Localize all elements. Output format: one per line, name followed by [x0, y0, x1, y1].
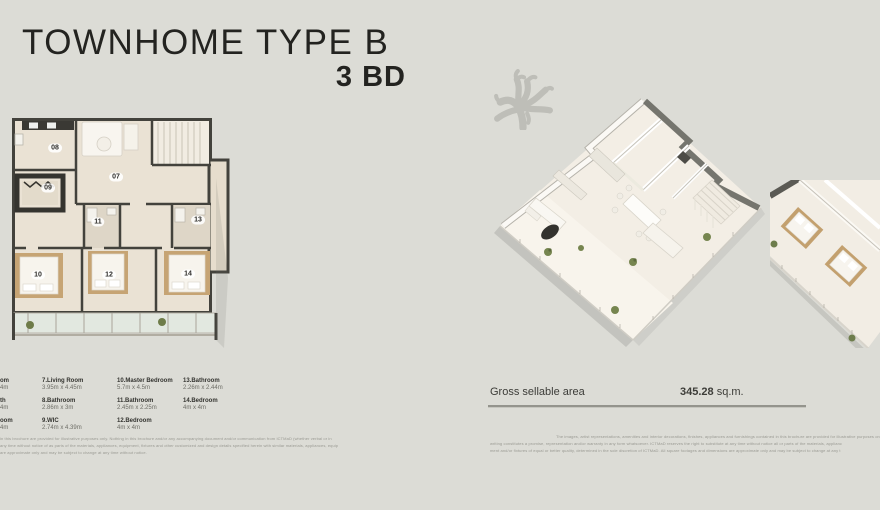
- isometric-floorplan-partial-graphic: [770, 180, 880, 348]
- disclaimer-line: in this brochure are provided for illust…: [0, 435, 390, 442]
- legend-item: 9.WIC 2.74m x 4.39m: [42, 418, 83, 431]
- legend-room-name: 7.Living Room: [42, 378, 83, 385]
- legend-room-dims: 4m x 4m: [183, 405, 223, 411]
- bathroom-11: [84, 204, 120, 248]
- legend-item: 14.Bedroom 4m x 4m: [183, 398, 223, 411]
- legend-item: 10.Master Bedroom 5.7m x 4.5m: [117, 378, 173, 391]
- legend-room-dims: 5.7m x 4.5m: [117, 385, 173, 391]
- gross-area-label: Gross sellable area: [490, 386, 585, 398]
- title-bedroom-count: 3 BD: [22, 62, 406, 92]
- floorplan-2d-graphic: [12, 118, 236, 366]
- wic-09: [17, 176, 63, 210]
- legend-item: 8.Bathroom 2.86m x 3m: [42, 398, 83, 411]
- disclaimer-line: are approximate only and may be subject …: [0, 449, 390, 456]
- legend-item: oom 4m: [0, 418, 13, 431]
- legend-room-name: 13.Bathroom: [183, 378, 223, 385]
- room-number-badge: 09: [41, 184, 55, 193]
- legend-room-name: 9.WIC: [42, 418, 83, 425]
- legend-room-name: 14.Bedroom: [183, 398, 223, 405]
- disclaimer-right: The images, artist representations, amen…: [490, 433, 880, 454]
- room-number-badge: 13: [191, 216, 205, 225]
- gross-area-divider: [488, 405, 806, 408]
- floorplan-2d: 0807091113101214: [12, 118, 236, 366]
- legend-room-name: 8.Bathroom: [42, 398, 83, 405]
- legend-room-name: th: [0, 398, 13, 405]
- legend-room-name: 12.Bedroom: [117, 418, 173, 425]
- room-number-badge: 11: [91, 218, 104, 227]
- room-number-badge: 10: [31, 271, 45, 280]
- bathroom-13: [172, 204, 210, 248]
- disclaimer-line: The images, artist representations, amen…: [490, 433, 880, 440]
- balcony: [14, 313, 217, 340]
- legend-room-dims: 2.74m x 4.39m: [42, 425, 83, 431]
- legend-room-name: 10.Master Bedroom: [117, 378, 173, 385]
- stairs: [152, 121, 211, 165]
- legend-item: 7.Living Room 3.95m x 4.45m: [42, 378, 83, 391]
- room-number-badge: 08: [48, 144, 62, 153]
- legend-column-3: 13.Bathroom 2.26m x 2.44m 14.Bedroom 4m …: [183, 378, 223, 418]
- room-number-badge: 12: [102, 271, 116, 280]
- isometric-floorplan-graphic: [493, 98, 783, 393]
- disclaimer-line: writing constitutes a promise, represent…: [490, 440, 880, 447]
- legend-room-dims: 2.26m x 2.44m: [183, 385, 223, 391]
- legend-room-dims: 4m: [0, 405, 13, 411]
- legend-item: om 4m: [0, 378, 13, 391]
- legend-room-dims: 2.45m x 2.25m: [117, 405, 173, 411]
- legend-item: 13.Bathroom 2.26m x 2.44m: [183, 378, 223, 391]
- legend-room-dims: 4m: [0, 425, 13, 431]
- room-number-badge: 14: [181, 270, 195, 279]
- gross-area-value: 345.28 sq.m.: [680, 386, 744, 398]
- legend-room-dims: 3.95m x 4.45m: [42, 385, 83, 391]
- legend-item: th 4m: [0, 398, 13, 411]
- legend-room-name: 11.Bathroom: [117, 398, 173, 405]
- legend-room-name: om: [0, 378, 13, 385]
- disclaimer-line: any time without notice of as parts of t…: [0, 442, 390, 449]
- legend-item: 12.Bedroom 4m x 4m: [117, 418, 173, 431]
- legend-room-dims: 4m: [0, 385, 13, 391]
- legend-room-dims: 4m x 4m: [117, 425, 173, 431]
- legend-column-clipped: om 4m th 4m oom 4m: [0, 378, 13, 438]
- title-townhome-type: TOWNHOME TYPE B: [22, 24, 406, 62]
- legend-room-dims: 2.86m x 3m: [42, 405, 83, 411]
- legend-item: 11.Bathroom 2.45m x 2.25m: [117, 398, 173, 411]
- disclaimer-line: ment and/or fixtures of equal or better …: [490, 447, 880, 454]
- room-number-badge: 07: [109, 173, 123, 182]
- legend-column-2: 10.Master Bedroom 5.7m x 4.5m 11.Bathroo…: [117, 378, 173, 438]
- disclaimer-left: in this brochure are provided for illust…: [0, 435, 390, 456]
- legend-room-name: oom: [0, 418, 13, 425]
- legend-column-1: 7.Living Room 3.95m x 4.45m 8.Bathroom 2…: [42, 378, 83, 438]
- brochure-page: TOWNHOME TYPE B 3 BD: [0, 0, 880, 510]
- page-title: TOWNHOME TYPE B 3 BD: [22, 24, 406, 92]
